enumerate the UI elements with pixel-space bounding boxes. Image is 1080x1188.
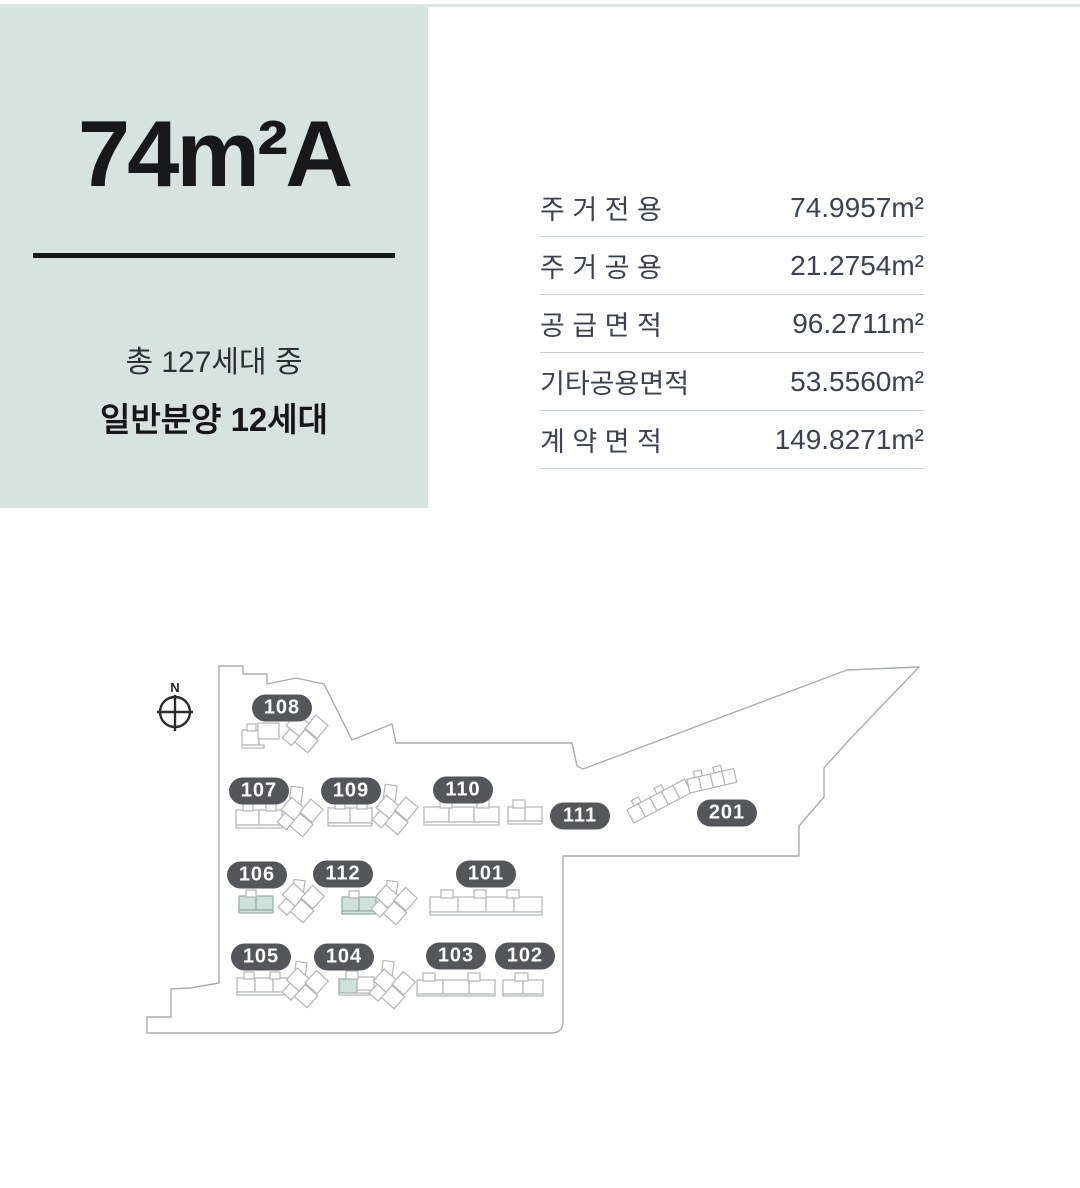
compass-icon: N: [157, 680, 193, 731]
building-badge-112: 112: [313, 861, 373, 888]
building-103: [417, 973, 495, 996]
site-plan-svg: N: [0, 0, 1080, 1188]
building-badge-107: 107: [229, 778, 289, 805]
building-badge-102: 102: [495, 943, 555, 970]
building-106-highlight: [256, 896, 273, 910]
building-badge-109: 109: [321, 778, 381, 805]
building-badge-104: 104: [314, 944, 374, 971]
building-badge-101: 101: [456, 861, 516, 888]
site-plan-map: N: [0, 0, 1080, 1188]
building-101: [430, 890, 542, 915]
building-badge-201: 201: [697, 800, 757, 827]
compass-north-label: N: [170, 680, 179, 695]
building-102: [503, 973, 543, 996]
building-111: [508, 800, 542, 824]
building-badge-111: 111: [550, 803, 610, 830]
building-badge-105: 105: [231, 944, 291, 971]
building-badge-110: 110: [433, 777, 493, 804]
building-104-highlight: [339, 979, 357, 993]
building-110: [424, 800, 499, 825]
building-badge-103: 103: [426, 943, 486, 970]
building-badge-106: 106: [227, 862, 287, 889]
building-112-highlight: [342, 897, 359, 911]
building-106-highlight: [239, 896, 256, 910]
building-badge-108: 108: [252, 695, 312, 722]
